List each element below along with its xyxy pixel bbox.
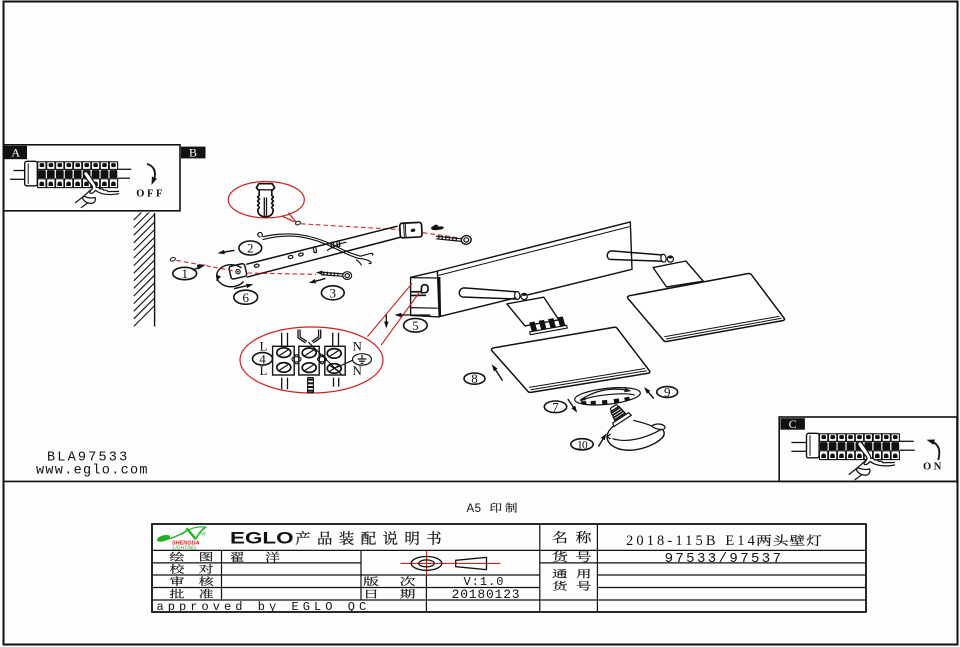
svg-text:www.eglo.com: www.eglo.com bbox=[36, 464, 149, 479]
svg-text:B: B bbox=[189, 145, 197, 159]
svg-text:A: A bbox=[11, 146, 20, 160]
svg-text:ew: ew bbox=[198, 532, 206, 538]
svg-text:LIGHTING: LIGHTING bbox=[173, 546, 197, 552]
svg-text:A5: A5 bbox=[467, 503, 482, 515]
svg-text:8: 8 bbox=[471, 371, 478, 386]
svg-text:2: 2 bbox=[247, 241, 254, 256]
svg-text:20180123: 20180123 bbox=[452, 587, 521, 602]
svg-text:5: 5 bbox=[412, 318, 419, 333]
svg-text:6: 6 bbox=[242, 290, 249, 305]
svg-text:C: C bbox=[789, 417, 797, 431]
svg-text:3: 3 bbox=[330, 285, 337, 300]
svg-text:2018-115B E14: 2018-115B E14 bbox=[626, 533, 758, 549]
svg-text:4: 4 bbox=[259, 351, 266, 366]
svg-text:10: 10 bbox=[577, 439, 588, 451]
svg-text:97533/97537: 97533/97537 bbox=[665, 551, 784, 567]
svg-text:1: 1 bbox=[181, 266, 188, 281]
svg-text:7: 7 bbox=[552, 399, 559, 414]
svg-text:9: 9 bbox=[664, 385, 671, 400]
svg-text:N: N bbox=[353, 339, 363, 354]
svg-text:OFF: OFF bbox=[136, 189, 165, 200]
svg-text:approved by EGLO QC: approved by EGLO QC bbox=[157, 600, 371, 614]
svg-text:N: N bbox=[353, 363, 363, 378]
svg-text:ON: ON bbox=[923, 462, 944, 473]
svg-text:EGLO: EGLO bbox=[230, 528, 294, 547]
